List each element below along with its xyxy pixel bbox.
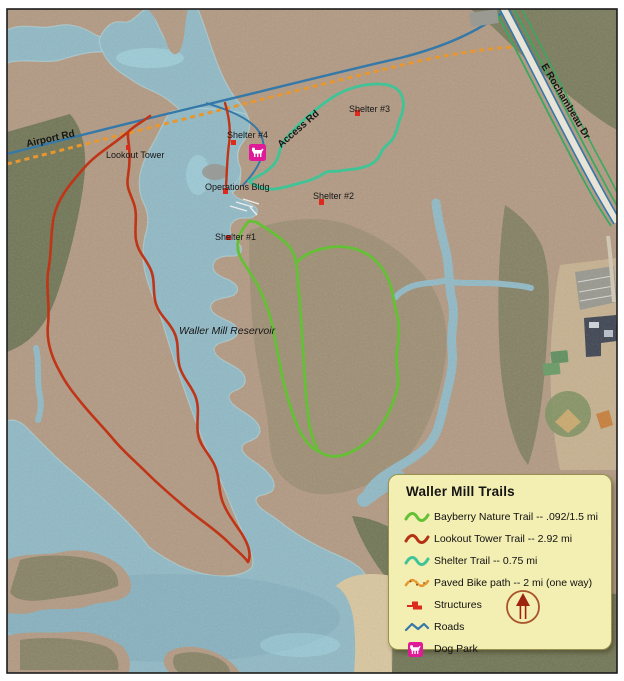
bayberry-trail-icon (404, 510, 434, 524)
structure-shelter4 (231, 140, 236, 145)
lookout-trail-icon (404, 532, 434, 546)
bike-path-icon (404, 576, 434, 590)
trail-map-page: Airport Rd Lookout Tower Shelter #4 Acce… (0, 0, 624, 681)
shelter-trail-icon (404, 554, 434, 568)
legend-item-dogpark: Dog Park (404, 638, 603, 660)
north-arrow-icon (501, 585, 545, 629)
legend-item-label: Dog Park (434, 643, 478, 655)
label-shelter-4: Shelter #4 (227, 130, 268, 140)
dog-park-legend-icon (404, 641, 434, 658)
label-reservoir: Waller Mill Reservoir (179, 325, 276, 337)
legend-item-label: Bayberry Nature Trail -- .092/1.5 mi (434, 511, 598, 523)
ops-clearing (202, 164, 228, 180)
legend-item-label: Lookout Tower Trail -- 2.92 mi (434, 533, 572, 545)
legend-item-bayberry: Bayberry Nature Trail -- .092/1.5 mi (404, 506, 603, 528)
label-shelter-1: Shelter #1 (215, 232, 256, 242)
roads-icon (404, 620, 434, 634)
dog-park-icon (249, 144, 266, 161)
legend-item-label: Roads (434, 621, 464, 633)
structures-icon (404, 598, 434, 612)
legend-item-lookout: Lookout Tower Trail -- 2.92 mi (404, 528, 603, 550)
label-shelter-2: Shelter #2 (313, 191, 354, 201)
legend-title: Waller Mill Trails (406, 484, 603, 499)
label-operations-bldg: Operations Bldg (205, 182, 270, 192)
legend-item-shelter: Shelter Trail -- 0.75 mi (404, 550, 603, 572)
legend-item-label: Shelter Trail -- 0.75 mi (434, 555, 537, 567)
label-lookout-tower: Lookout Tower (106, 150, 164, 160)
legend: Waller Mill Trails Bayberry Nature Trail… (388, 474, 612, 650)
label-shelter-3: Shelter #3 (349, 104, 390, 114)
legend-item-label: Structures (434, 599, 482, 611)
